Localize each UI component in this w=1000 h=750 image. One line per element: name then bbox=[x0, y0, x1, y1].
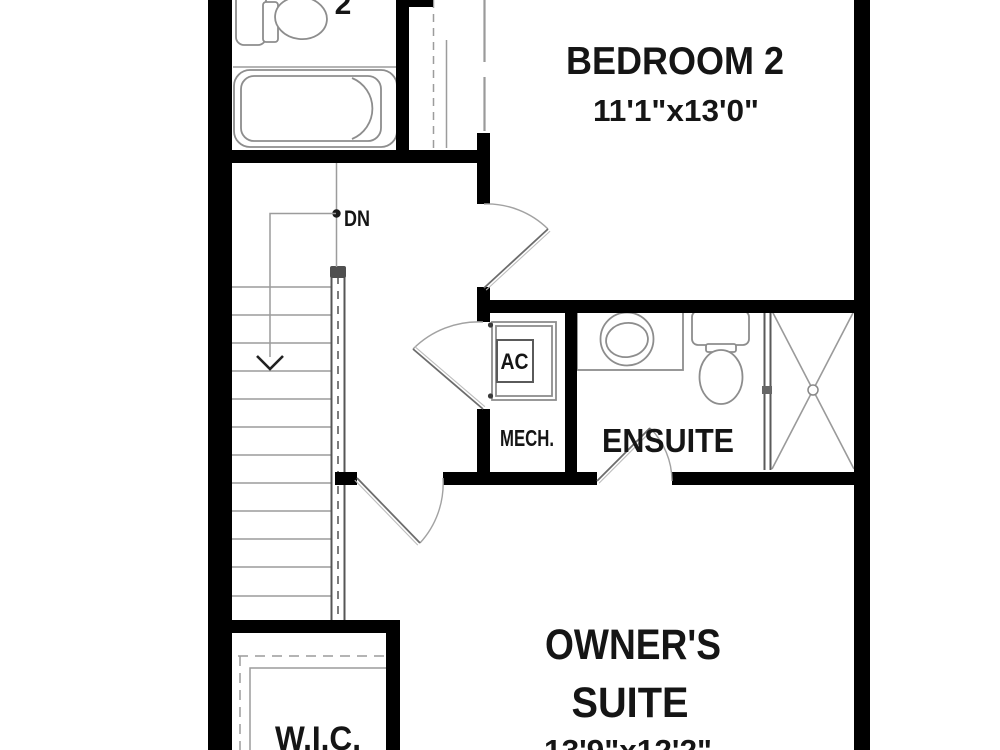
wall-mech-ensuite-divider bbox=[565, 300, 577, 477]
bedroom2-label: BEDROOM 2 bbox=[566, 40, 784, 83]
wall-bath-right bbox=[396, 0, 409, 163]
wall-wic-right bbox=[386, 620, 400, 750]
bath2-vanity bbox=[236, 0, 266, 45]
bedroom2-dimensions: 11'1"x13'0" bbox=[593, 93, 759, 128]
handrail-end-cap bbox=[330, 266, 346, 278]
ensuite-label: ENSUITE bbox=[602, 422, 734, 459]
outer-wall-left bbox=[208, 0, 232, 750]
ac-corner-dot-top bbox=[488, 322, 493, 327]
wall-stairs-bottom bbox=[208, 620, 400, 633]
shower-drain bbox=[808, 385, 818, 395]
bath2-label-partial: 2 bbox=[335, 0, 352, 21]
ac-label: AC bbox=[501, 349, 529, 374]
ensuite-toilet-bowl bbox=[700, 350, 743, 404]
outer-wall-right bbox=[854, 0, 870, 750]
mech-label: MECH. bbox=[500, 425, 554, 451]
wall-hall-mech-lower bbox=[477, 409, 490, 477]
floor-plan-page: 2 BEDROOM 2 11'1"x13'0" DN AC MECH. ENSU… bbox=[0, 0, 1000, 750]
owners-suite-dimensions: 13'9"x12'2" bbox=[544, 733, 712, 750]
wall-ensuite-bottom bbox=[672, 472, 870, 485]
wall-mech-bottom bbox=[443, 472, 597, 485]
floor-plan-canvas: 2 BEDROOM 2 11'1"x13'0" DN AC MECH. ENSU… bbox=[0, 0, 1000, 750]
wic-label: W.I.C. bbox=[275, 720, 361, 750]
wall-hall-bedroom-upper bbox=[477, 133, 490, 204]
wall-ensuite-top bbox=[477, 300, 870, 313]
wall-top-stub bbox=[402, 0, 433, 7]
wall-bath-bottom bbox=[208, 150, 489, 163]
wall-owner-door-left-stub bbox=[335, 472, 357, 485]
shower-door-latch bbox=[762, 386, 772, 394]
owners-suite-label-line1: OWNER'S bbox=[545, 621, 721, 669]
owners-suite-label-line2: SUITE bbox=[572, 679, 689, 727]
ensuite-toilet-tank bbox=[692, 311, 749, 345]
ac-corner-dot-bottom bbox=[488, 393, 493, 398]
stairs-dn-label: DN bbox=[344, 206, 370, 231]
